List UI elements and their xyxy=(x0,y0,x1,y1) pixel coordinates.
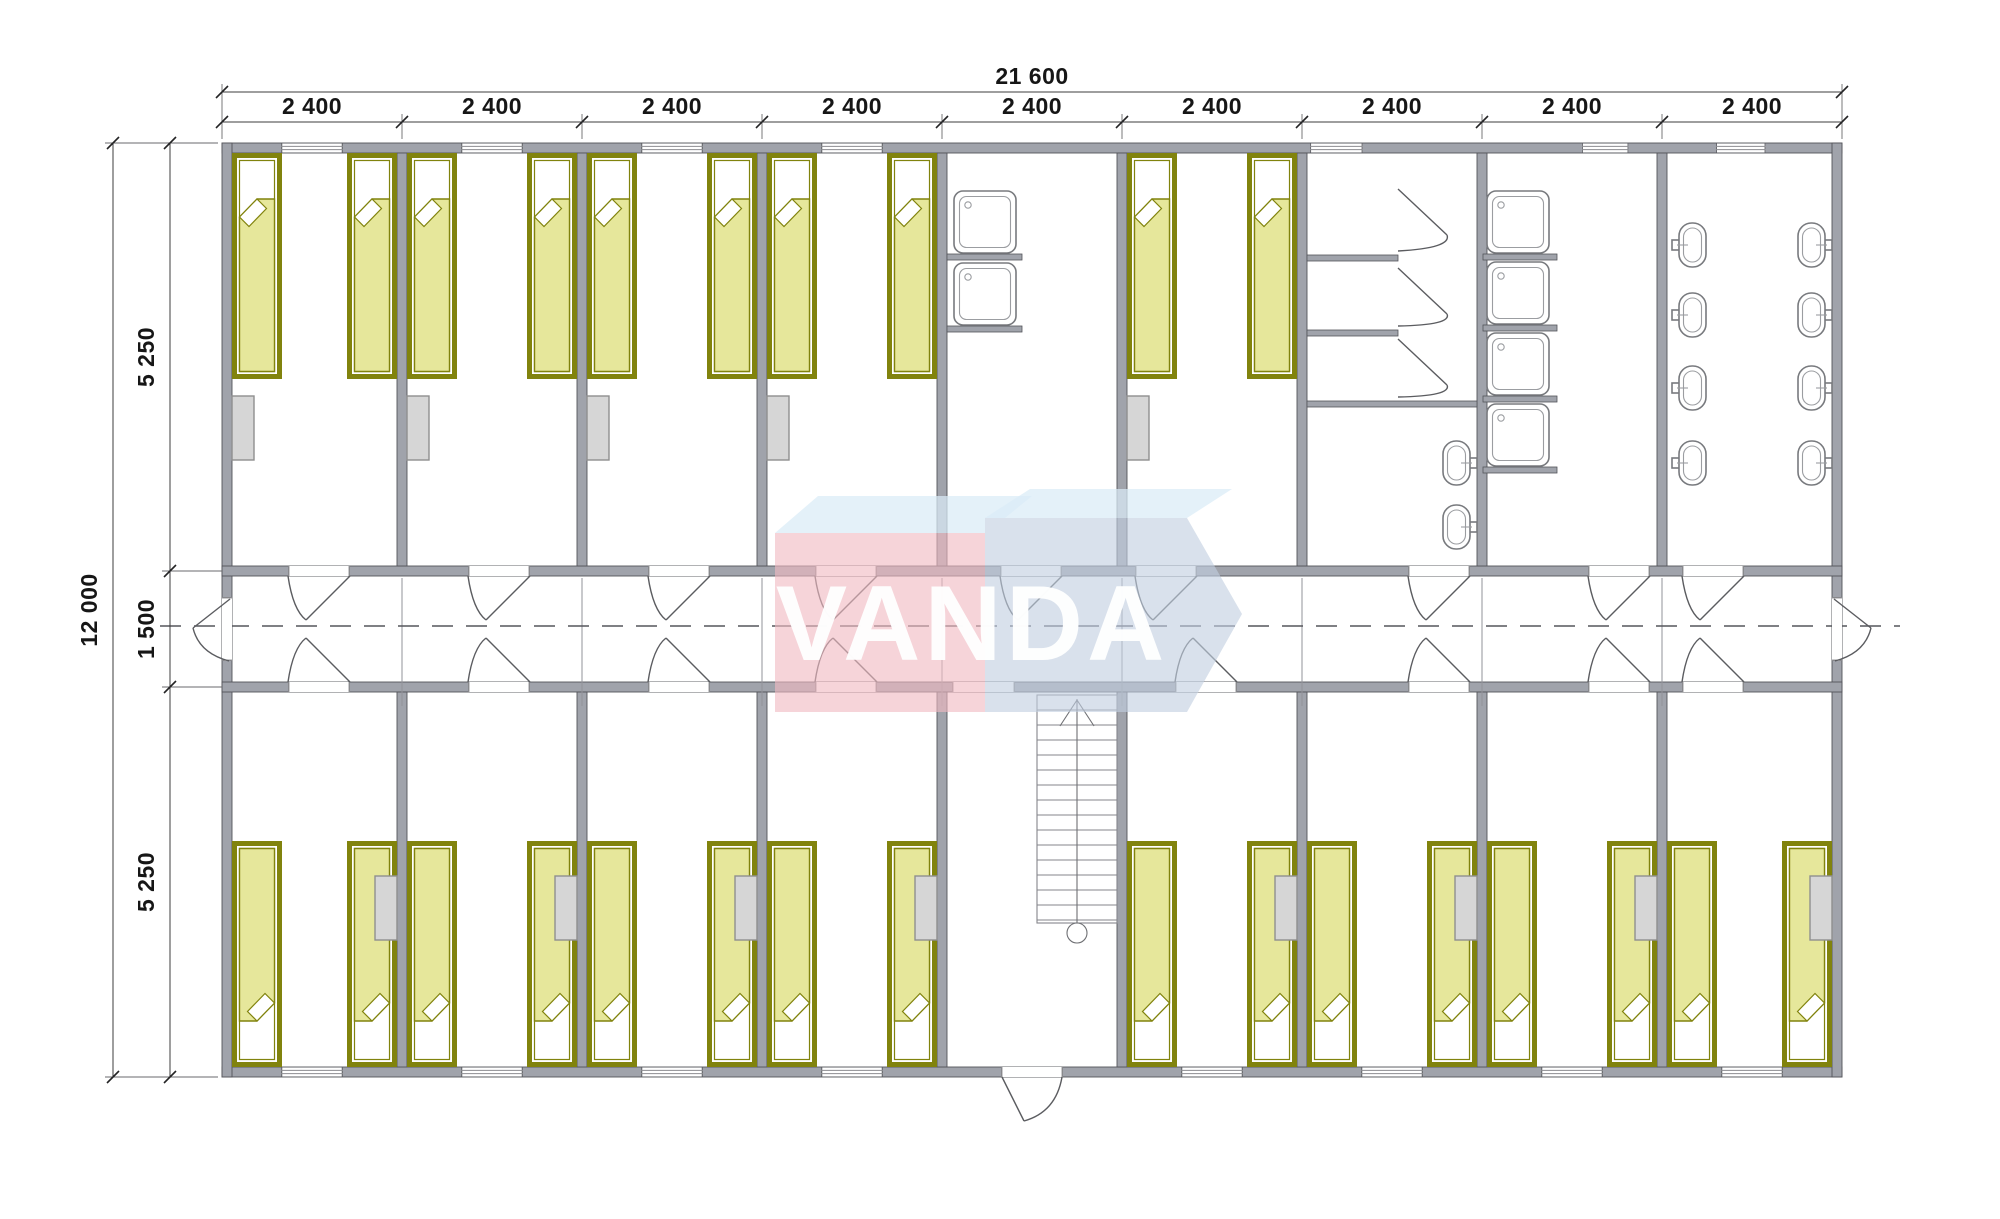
bed xyxy=(590,844,635,1065)
dim-module: 2 400 xyxy=(1182,93,1242,119)
bed xyxy=(530,156,575,377)
dim-module: 2 400 xyxy=(462,93,522,119)
wash-basin xyxy=(1798,441,1832,485)
window xyxy=(461,1068,523,1077)
wardrobe xyxy=(1810,876,1832,940)
dim-depth-segment: 1 500 xyxy=(133,599,159,659)
room-door xyxy=(288,566,350,620)
wardrobe xyxy=(407,396,429,460)
room-door xyxy=(1408,566,1470,620)
window xyxy=(1541,1068,1603,1077)
stall-partition xyxy=(1307,330,1398,336)
bed xyxy=(350,156,395,377)
watermark-text: VANDA xyxy=(776,563,1169,683)
bed xyxy=(1670,844,1715,1065)
room-door xyxy=(1682,566,1744,620)
room-door xyxy=(648,566,710,620)
room-door xyxy=(288,638,350,692)
watermark-top-face xyxy=(985,489,1232,518)
shower-tray xyxy=(954,191,1016,253)
dim-total-width: 21 600 xyxy=(995,63,1068,89)
shower-tray xyxy=(1487,333,1549,395)
shower-partition xyxy=(1483,396,1557,402)
shower-tray xyxy=(954,263,1016,325)
exit-door-left xyxy=(193,597,232,661)
stair-start-marker xyxy=(1067,923,1087,943)
wash-basin xyxy=(1798,293,1832,337)
wash-basin xyxy=(1443,505,1477,549)
wash-basin xyxy=(1672,441,1706,485)
washroom-module5 xyxy=(947,191,1022,332)
bed xyxy=(410,156,455,377)
dim-module: 2 400 xyxy=(642,93,702,119)
bed xyxy=(890,156,935,377)
dim-depth-segment: 5 250 xyxy=(133,327,159,387)
stall-door xyxy=(1398,268,1447,326)
watermark: VANDA xyxy=(775,489,1242,712)
window xyxy=(281,1068,343,1077)
wardrobe xyxy=(555,876,577,940)
shower-partition xyxy=(1483,254,1557,260)
window xyxy=(1716,144,1766,153)
wash-basin xyxy=(1798,223,1832,267)
wash-basin xyxy=(1443,441,1477,485)
wash-basin xyxy=(1672,366,1706,410)
dimension-top: 21 600 2 400 2 400 2 400 2 400 2 400 2 4… xyxy=(216,63,1848,139)
room-door xyxy=(1588,566,1650,620)
dim-module: 2 400 xyxy=(282,93,342,119)
bed xyxy=(770,156,815,377)
dim-module: 2 400 xyxy=(1722,93,1782,119)
bed xyxy=(1250,156,1295,377)
wash-basin xyxy=(1672,223,1706,267)
window xyxy=(461,144,523,153)
window xyxy=(1181,1068,1243,1077)
wardrobe xyxy=(1635,876,1657,940)
floor-plan-canvas: VANDA 21 600 2 400 2 400 2 400 2 40 xyxy=(0,0,2000,1219)
window xyxy=(821,144,883,153)
dim-depth-segment: 5 250 xyxy=(133,852,159,912)
dim-module: 2 400 xyxy=(822,93,882,119)
wardrobe xyxy=(1275,876,1297,940)
bed xyxy=(710,156,755,377)
shower-room-module8 xyxy=(1483,191,1557,473)
window xyxy=(1721,1068,1783,1077)
bed xyxy=(410,844,455,1065)
dim-total-depth: 12 000 xyxy=(76,573,102,646)
shower-partition xyxy=(947,254,1022,260)
window xyxy=(281,144,343,153)
bed xyxy=(1310,844,1355,1065)
bed xyxy=(1130,844,1175,1065)
bed xyxy=(590,156,635,377)
wardrobe xyxy=(735,876,757,940)
room-door xyxy=(648,638,710,692)
stall-door xyxy=(1398,339,1447,397)
shower-partition xyxy=(1483,325,1557,331)
wardrobe xyxy=(915,876,937,940)
room-door xyxy=(1408,638,1470,692)
wardrobe xyxy=(375,876,397,940)
bed xyxy=(235,156,280,377)
wardrobe xyxy=(1127,396,1149,460)
dim-module: 2 400 xyxy=(1362,93,1422,119)
shower-partition xyxy=(947,326,1022,332)
floor-plan-svg: VANDA 21 600 2 400 2 400 2 400 2 40 xyxy=(0,0,2000,1219)
bed xyxy=(770,844,815,1065)
washbasin-room-module9 xyxy=(1672,223,1832,485)
bed xyxy=(235,844,280,1065)
wardrobe xyxy=(767,396,789,460)
window xyxy=(821,1068,883,1077)
dim-module: 2 400 xyxy=(1002,93,1062,119)
room-door xyxy=(468,638,530,692)
room-door xyxy=(1588,638,1650,692)
shower-partition xyxy=(1483,467,1557,473)
shower-tray xyxy=(1487,191,1549,253)
bed xyxy=(1130,156,1175,377)
exit-door-right xyxy=(1832,597,1871,661)
room-door xyxy=(1682,638,1744,692)
window xyxy=(641,144,703,153)
wash-basin xyxy=(1672,293,1706,337)
wardrobe xyxy=(232,396,254,460)
beds-bottom-rooms xyxy=(235,844,1830,1065)
stall-partition xyxy=(1307,255,1398,261)
wardrobe xyxy=(1455,876,1477,940)
room-door xyxy=(468,566,530,620)
wash-basin xyxy=(1798,366,1832,410)
bed xyxy=(1490,844,1535,1065)
dimension-left: 12 000 5 250 1 500 5 250 xyxy=(76,137,222,1083)
window xyxy=(641,1068,703,1077)
wardrobe xyxy=(587,396,609,460)
window xyxy=(1582,144,1629,153)
shower-tray xyxy=(1487,404,1549,466)
dim-module: 2 400 xyxy=(1542,93,1602,119)
window xyxy=(1310,144,1363,153)
entrance-door xyxy=(1001,1067,1063,1121)
stall-partition xyxy=(1307,401,1477,407)
shower-tray xyxy=(1487,262,1549,324)
window xyxy=(1361,1068,1423,1077)
toilet-room-module7 xyxy=(1307,189,1477,549)
staircase xyxy=(1037,695,1117,943)
stall-door xyxy=(1398,189,1447,251)
